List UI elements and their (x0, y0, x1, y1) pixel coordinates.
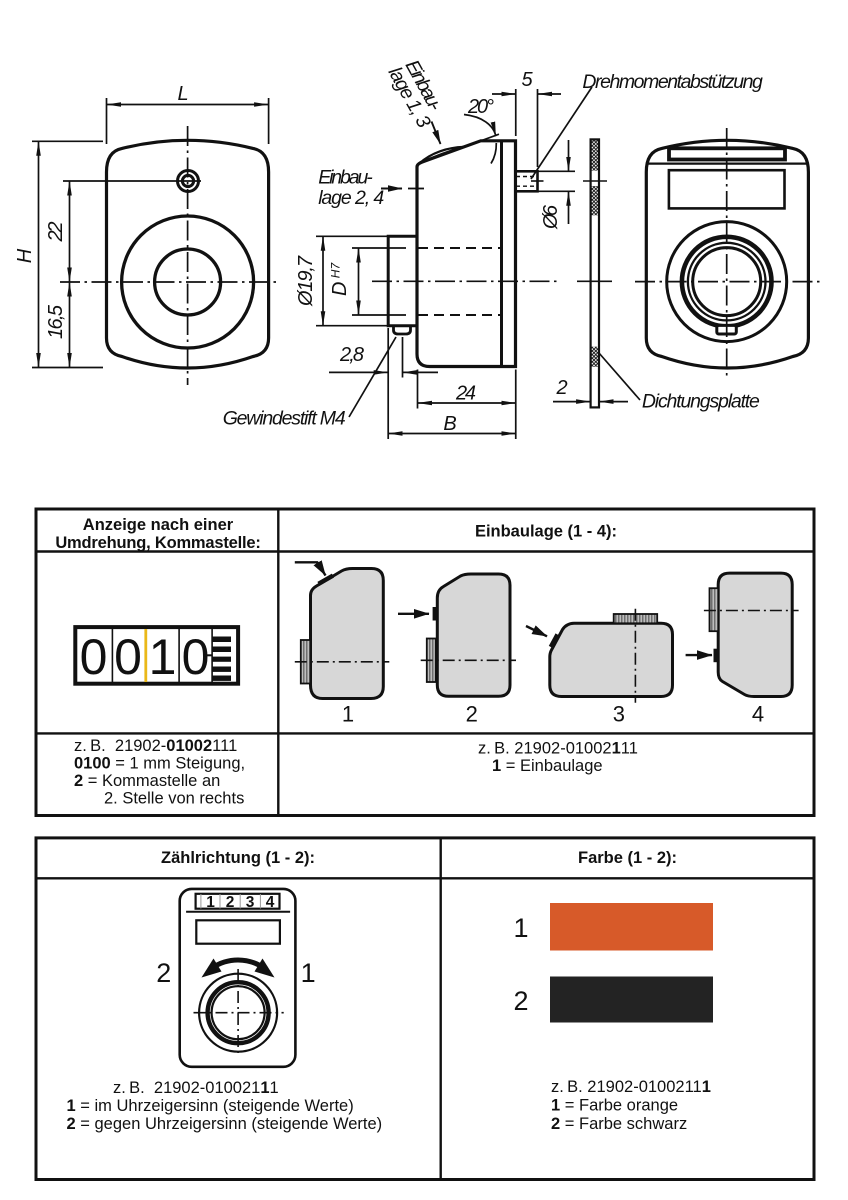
svg-text:2: 2 (226, 894, 235, 911)
svg-text:B: B (443, 413, 456, 435)
svg-text:1 = im Uhrzeigersinn (steigend: 1 = im Uhrzeigersinn (steigende Werte) (67, 1097, 354, 1115)
svg-text:H: H (14, 248, 36, 263)
svg-text:z. B. 21902-01002111: z. B. 21902-01002111 (551, 1078, 711, 1096)
svg-text:Gewindestift M4: Gewindestift M4 (223, 408, 346, 430)
svg-text:Zählrichtung (1 - 2):: Zählrichtung (1 - 2): (161, 849, 315, 867)
svg-text:16,5: 16,5 (45, 304, 67, 339)
svg-text:2: 2 (156, 958, 171, 988)
svg-text:20°: 20° (467, 96, 494, 118)
svg-text:Einbaulage (1 - 4):: Einbaulage (1 - 4): (475, 523, 617, 541)
svg-text:Dichtungsplatte: Dichtungsplatte (642, 390, 760, 412)
svg-text:3: 3 (613, 702, 625, 727)
svg-text:4: 4 (266, 894, 275, 911)
svg-text:5: 5 (521, 69, 533, 91)
svg-text:Farbe (1 - 2):: Farbe (1 - 2): (578, 849, 677, 867)
svg-text:2 = Kommastelle an: 2 = Kommastelle an (74, 772, 220, 790)
svg-text:2: 2 (555, 377, 567, 399)
svg-text:0: 0 (114, 629, 142, 685)
svg-text:Anzeige nach einer: Anzeige nach einer (83, 516, 234, 534)
svg-text:2 = Farbe schwarz: 2 = Farbe schwarz (551, 1115, 687, 1133)
svg-text:Ø6: Ø6 (540, 204, 562, 230)
svg-text:2,8: 2,8 (339, 344, 364, 366)
svg-text:22: 22 (45, 222, 67, 243)
svg-text:Umdrehung, Kommastelle:: Umdrehung, Kommastelle: (55, 534, 260, 552)
svg-text:z. B. 21902-01002111: z. B. 21902-01002111 (113, 1079, 279, 1097)
svg-text:Drehmomentabstützung: Drehmomentabstützung (582, 71, 763, 93)
svg-text:0: 0 (182, 629, 210, 685)
svg-text:1: 1 (149, 629, 177, 685)
svg-text:2: 2 (513, 986, 528, 1016)
svg-text:1: 1 (206, 894, 215, 911)
svg-text:1: 1 (301, 958, 316, 988)
svg-text:L: L (177, 83, 188, 105)
svg-text:0100 = 1 mm Steigung,: 0100 = 1 mm Steigung, (74, 755, 245, 773)
svg-text:1: 1 (342, 702, 354, 727)
svg-text:z. B. 21902-01002111: z. B. 21902-01002111 (74, 737, 237, 755)
svg-text:2 = gegen Uhrzeigersinn (steig: 2 = gegen Uhrzeigersinn (steigende Werte… (67, 1115, 383, 1133)
svg-text:1: 1 (513, 913, 528, 943)
svg-text:2: 2 (466, 702, 478, 727)
svg-text:1 = Farbe orange: 1 = Farbe orange (551, 1097, 678, 1115)
svg-text:0: 0 (80, 629, 108, 685)
svg-text:3: 3 (246, 894, 255, 911)
svg-text:1 = Einbaulage: 1 = Einbaulage (492, 757, 603, 775)
svg-text:24: 24 (455, 383, 476, 405)
svg-text:z. B. 21902-01002111: z. B. 21902-01002111 (478, 740, 638, 758)
svg-text:Einbau-: Einbau- (318, 167, 373, 189)
svg-text:lage 2, 4: lage 2, 4 (318, 187, 384, 209)
svg-text:Ø19,7: Ø19,7 (295, 255, 317, 307)
svg-text:4: 4 (752, 702, 764, 727)
svg-text:2. Stelle von rechts: 2. Stelle von rechts (104, 790, 244, 808)
